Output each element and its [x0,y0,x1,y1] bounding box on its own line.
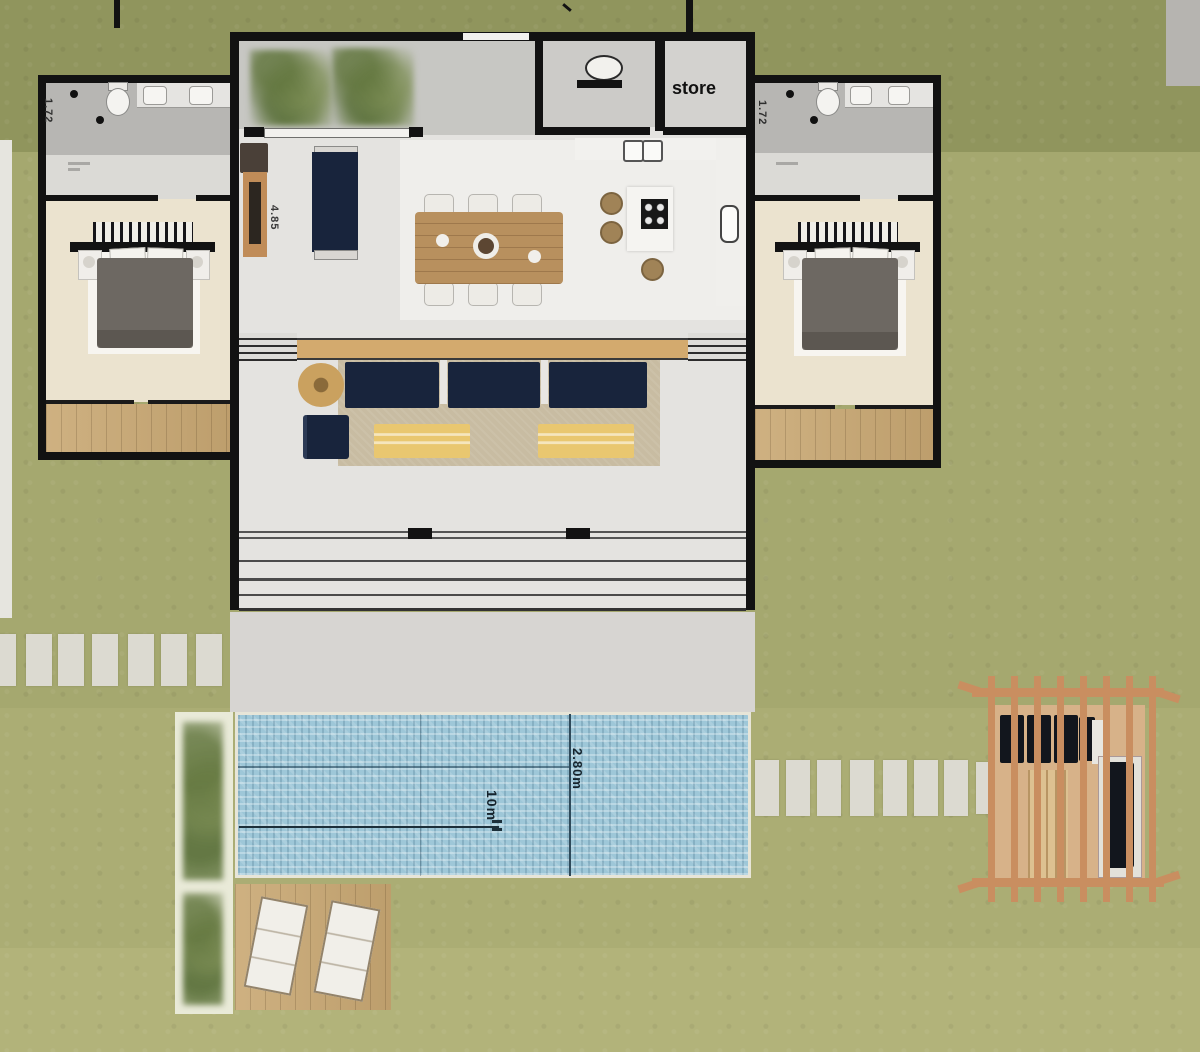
right-bath-dimension-label: 1.72 [756,100,767,125]
sink [888,86,910,105]
pergola-rafter [1057,676,1064,902]
stepping-stone [161,634,187,686]
pool-lane-line [238,766,570,768]
headboard-slats [798,222,898,244]
cooktop [641,199,668,229]
table-dish [528,250,541,263]
stepping-stone [0,634,16,686]
floor-drain [70,90,78,98]
left-bed-wall-line [46,400,134,404]
louver-panel [239,333,297,361]
daybed-end [314,250,358,260]
left-bed-wall-line [148,400,232,404]
left-wing-wall-bottom [38,452,234,460]
pergola-beam-bottom [972,878,1164,887]
sink [850,86,872,105]
pergola-rafter [1034,676,1041,902]
shower-mark [68,162,90,165]
stepping-stone [944,760,968,816]
shower-mark [776,162,798,165]
floor-drain [96,116,104,124]
floor-drain [810,116,818,124]
step-line [239,578,746,581]
dining-chair [512,282,542,306]
stepping-stone [755,760,779,816]
pool-length-label: 10m [485,790,499,821]
pool-width-label: 2.80m [571,748,584,790]
duvet-foot [802,332,898,350]
sliding-door [264,128,411,138]
wc-wall-bottom [535,127,650,135]
right-interior-wall [898,195,933,201]
entry-floor [423,41,535,135]
glass-door-track [239,531,746,533]
toilet [816,88,840,116]
pergola-rafter [1011,676,1018,902]
console-inlay [249,182,261,244]
bar-stool [600,192,623,215]
entry-door-gap [463,33,529,40]
boundary-wall-stub [114,0,120,28]
wc-store-divider-wall [655,41,665,131]
planter-plants [183,722,223,880]
right-wing-wall-right [933,75,941,468]
step-line [239,594,746,596]
stepping-stone [883,760,907,816]
round-side-table [298,363,344,407]
stepping-stone [26,634,52,686]
courtyard-shrub [332,48,414,126]
store-room-label: store [672,78,716,99]
prep-sink [720,205,739,243]
step-line [239,560,746,562]
sink [143,86,167,105]
left-bedroom-deck [46,404,232,452]
bedside-lamp [83,256,95,268]
daybed [312,152,358,252]
sofa-section [345,362,439,408]
wc-privacy-wall [577,80,622,88]
sofa-section [549,362,647,408]
floor-drain [786,90,794,98]
door-mullion [408,528,432,539]
pergola-beam-top [972,688,1164,697]
sink [189,86,213,105]
bar-stool [600,221,623,244]
louver-panel [688,333,746,361]
left-wing-wall-left [38,75,46,460]
ottoman [374,424,470,458]
duvet-foot [97,330,193,348]
left-interior-wall [196,195,232,201]
media-cabinet [240,143,268,173]
right-bed-wall-line [755,405,835,409]
courtyard-shrub [250,50,332,126]
right-wing-wall-top [755,75,941,83]
stepping-stone [817,760,841,816]
dining-chair [424,282,454,306]
pool-divider-faint [420,714,421,876]
right-bedroom-deck [755,409,933,461]
wc-wall-left [535,41,543,135]
stepping-stone [786,760,810,816]
pergola-rafter [1149,676,1156,902]
left-fence-strip [0,140,12,618]
stepping-stone [58,634,84,686]
left-bath-dimension-label: 1.72 [42,98,53,123]
living-dimension-label: 4.85 [268,205,279,230]
pool-length-dim-line [239,826,499,828]
sliding-door-cap [409,127,423,137]
left-wing-wall-top [38,75,234,83]
table-dish [436,234,449,247]
main-wall-left [230,32,239,610]
door-mullion [566,528,590,539]
left-interior-wall [46,195,158,201]
bedside-lamp [788,256,800,268]
sofa-section [448,362,540,408]
sliding-door-cap [244,127,264,137]
stepping-stone [92,634,118,686]
centerpiece-bowl [478,238,494,254]
right-wing-wall-bottom [755,460,941,468]
planter-plants [183,893,223,1005]
right-vestibule-floor [755,153,933,199]
pool-divider-line [569,714,571,876]
pool-terrace [230,612,755,712]
pergola-rafter [1126,676,1133,902]
ottoman [538,424,634,458]
stepping-stone [850,760,874,816]
floor-plan-canvas: 1.72 1.72 [0,0,1200,1052]
wood-beam-band [239,338,746,360]
kitchen-sink [623,140,644,162]
right-interior-wall [755,195,860,201]
armchair [303,415,349,459]
main-wall-right [746,32,755,610]
right-bed-wall-line [855,405,933,409]
sofa-arm-gap [440,360,447,404]
driveway-corner [1166,0,1200,86]
toilet [106,88,130,116]
kitchen-sink [642,140,663,162]
sofa-arm-gap [541,360,548,404]
pergola-rafter [1080,676,1087,902]
stepping-stone [196,634,222,686]
pergola-rafter [1103,676,1110,902]
toilet [585,55,623,81]
glass-door-track [239,537,746,539]
stepping-stone [128,634,154,686]
bar-stool [641,258,664,281]
pergola-rafter [988,676,995,902]
dim-tick [492,828,502,831]
store-wall-bottom [663,127,747,135]
shower-mark [68,168,80,171]
headboard-slats [93,222,193,244]
dining-chair [468,282,498,306]
stepping-stone [914,760,938,816]
step-line [239,608,746,611]
